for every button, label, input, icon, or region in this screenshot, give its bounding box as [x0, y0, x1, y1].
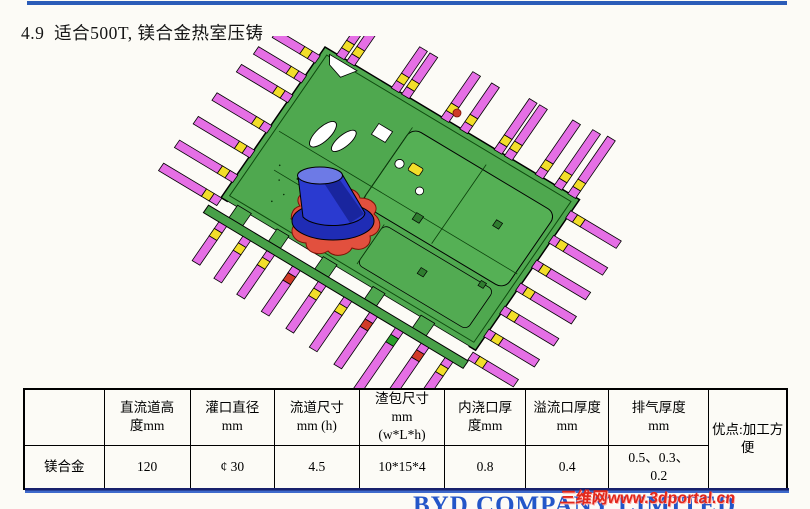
header-cell-sprue-height: 直流道高 度mm [104, 389, 190, 445]
header-cell-slag-well-size: 渣包尺寸 mm (w*L*h) [359, 389, 444, 445]
advantage-cell: 优点:加工方 便 [709, 389, 787, 489]
table-data-row: 镁合金 120 ¢ 30 4.5 10*15*4 0.8 0.4 0.5、0.3… [24, 445, 787, 489]
die-cast-plate [104, 36, 674, 388]
cell-ingate-thickness: 0.8 [445, 445, 526, 489]
top-rule-bar [27, 1, 787, 5]
document-page: 4.9 适合500T, 镁合金热室压铸 [0, 0, 810, 509]
header-cell-gate-diameter: 灌口直径 mm [190, 389, 274, 445]
cell-slag-well-size: 10*15*4 [359, 445, 444, 489]
header-cell-material [24, 389, 104, 445]
watermark-text: 三维网www.3dportal.cn [559, 484, 737, 508]
header-cell-runner-size: 流道尺寸 mm (h) [274, 389, 359, 445]
cad-figure [0, 36, 810, 388]
header-cell-ingate-thickness: 内浇口厚 度mm [445, 389, 526, 445]
header-cell-vent-thickness: 排气厚度 mm [609, 389, 709, 445]
cell-material: 镁合金 [24, 445, 104, 489]
cell-sprue-height: 120 [104, 445, 190, 489]
cell-runner-size: 4.5 [274, 445, 359, 489]
cell-gate-diameter: ¢ 30 [190, 445, 274, 489]
cell-overflow-thickness: 0.4 [526, 445, 609, 489]
header-cell-overflow-thickness: 溢流口厚度 mm [526, 389, 609, 445]
gating-spec-table: 直流道高 度mm 灌口直径 mm 流道尺寸 mm (h) 渣包尺寸 mm (w*… [23, 388, 788, 490]
table-header-row: 直流道高 度mm 灌口直径 mm 流道尺寸 mm (h) 渣包尺寸 mm (w*… [24, 389, 787, 445]
runner-ball [453, 109, 461, 117]
cell-vent-thickness: 0.5、0.3、 0.2 [609, 445, 709, 489]
